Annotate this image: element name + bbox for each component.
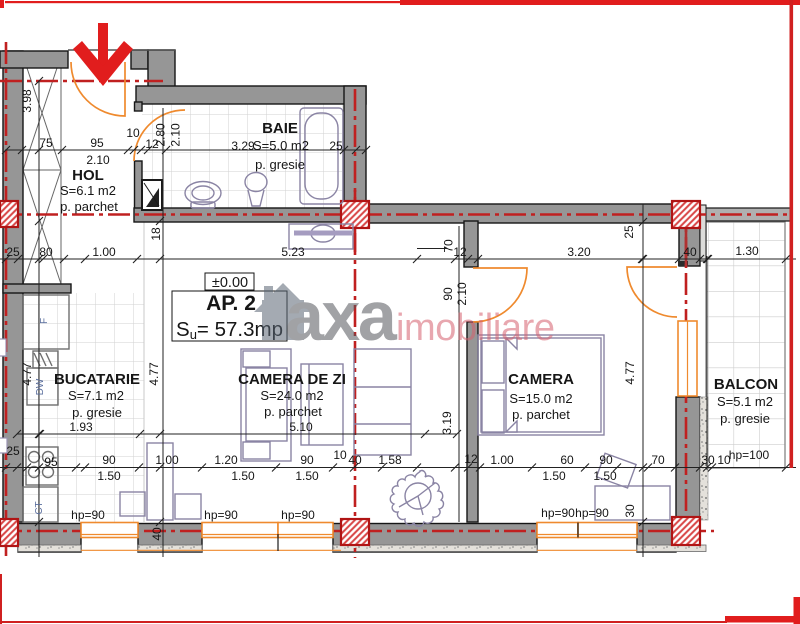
svg-text:BAIE: BAIE: [262, 120, 298, 137]
svg-text:p. parchet: p. parchet: [512, 407, 570, 422]
svg-text:hp=90: hp=90: [575, 506, 609, 520]
svg-text:hp=90: hp=90: [541, 506, 575, 520]
svg-text:CAMERA DE ZI: CAMERA DE ZI: [238, 371, 346, 388]
svg-text:p. parchet: p. parchet: [264, 404, 322, 419]
svg-text:30: 30: [701, 453, 715, 467]
svg-text:1.00: 1.00: [92, 245, 116, 259]
svg-text:5.23: 5.23: [281, 245, 305, 259]
svg-text:4.77: 4.77: [20, 362, 34, 386]
svg-text:95: 95: [44, 455, 58, 469]
svg-text:S=5.1 m2: S=5.1 m2: [717, 394, 773, 409]
svg-text:2.10: 2.10: [169, 123, 183, 147]
svg-text:90: 90: [300, 453, 314, 467]
svg-text:40: 40: [348, 453, 362, 467]
svg-text:1.50: 1.50: [295, 469, 319, 483]
svg-text:S=24.0 m2: S=24.0 m2: [260, 388, 323, 403]
svg-text:AP. 2: AP. 2: [206, 292, 256, 315]
svg-text:BALCON: BALCON: [714, 376, 778, 393]
svg-text:F: F: [39, 318, 50, 324]
svg-text:axa: axa: [285, 277, 398, 355]
svg-text:2.10: 2.10: [86, 153, 110, 167]
svg-text:1.93: 1.93: [69, 420, 93, 434]
svg-text:hp=90: hp=90: [71, 508, 105, 522]
svg-text:3.19: 3.19: [440, 411, 454, 435]
svg-text:hp=90: hp=90: [281, 508, 315, 522]
svg-text:90: 90: [102, 453, 116, 467]
svg-text:4.77: 4.77: [623, 361, 637, 385]
svg-text:1.50: 1.50: [97, 469, 121, 483]
svg-text:90: 90: [441, 287, 455, 301]
svg-text:1.50: 1.50: [593, 469, 617, 483]
svg-text:3.29: 3.29: [231, 139, 255, 153]
svg-text:75: 75: [39, 136, 53, 150]
svg-text:hp=90: hp=90: [204, 508, 238, 522]
svg-text:CT: CT: [34, 501, 45, 514]
svg-text:40: 40: [150, 527, 164, 541]
svg-text:p. gresie: p. gresie: [72, 405, 122, 420]
svg-text:2.80: 2.80: [154, 123, 168, 147]
svg-text:25: 25: [622, 225, 636, 239]
svg-text:4.77: 4.77: [147, 362, 161, 386]
svg-text:1.30: 1.30: [735, 244, 759, 258]
svg-text:70: 70: [442, 239, 456, 253]
svg-text:1.58: 1.58: [378, 453, 402, 467]
svg-text:S=5.0 m2: S=5.0 m2: [253, 138, 309, 153]
svg-text:DW: DW: [35, 378, 46, 395]
svg-text:60: 60: [560, 453, 574, 467]
svg-text:90: 90: [599, 453, 613, 467]
svg-text:80: 80: [39, 245, 53, 259]
svg-text:95: 95: [90, 136, 104, 150]
svg-text:1.00: 1.00: [490, 453, 514, 467]
svg-text:10: 10: [333, 448, 347, 462]
svg-text:S=7.1 m2: S=7.1 m2: [68, 388, 124, 403]
svg-text:1.50: 1.50: [231, 469, 255, 483]
svg-text:25: 25: [6, 444, 20, 458]
svg-text:HOL: HOL: [72, 167, 104, 184]
svg-text:3.98: 3.98: [20, 89, 34, 113]
svg-text:40: 40: [683, 245, 697, 259]
svg-text:25: 25: [6, 245, 20, 259]
svg-text:2.10: 2.10: [455, 282, 469, 306]
svg-text:p. gresie: p. gresie: [720, 411, 770, 426]
svg-text:1.00: 1.00: [155, 453, 179, 467]
svg-text:3.20: 3.20: [567, 245, 591, 259]
svg-text:25: 25: [329, 139, 343, 153]
svg-text:1.20: 1.20: [214, 453, 238, 467]
svg-text:S=15.0 m2: S=15.0 m2: [509, 391, 572, 406]
svg-text:imobiliare: imobiliare: [396, 307, 555, 349]
svg-text:CAMERA: CAMERA: [508, 371, 574, 388]
svg-text:p. parchet: p. parchet: [60, 199, 118, 214]
svg-text:10: 10: [126, 126, 140, 140]
svg-text:30: 30: [623, 504, 637, 518]
svg-text:p. gresie: p. gresie: [255, 157, 305, 172]
svg-text:hp=100: hp=100: [729, 448, 770, 462]
svg-text:±0.00: ±0.00: [212, 275, 248, 291]
svg-text:S=6.1 m2: S=6.1 m2: [60, 183, 116, 198]
svg-text:12: 12: [464, 452, 478, 466]
svg-text:5.10: 5.10: [289, 420, 313, 434]
svg-text:18: 18: [149, 227, 163, 241]
svg-text:BUCATARIE: BUCATARIE: [54, 371, 140, 388]
svg-text:1.50: 1.50: [542, 469, 566, 483]
svg-text:70: 70: [651, 453, 665, 467]
